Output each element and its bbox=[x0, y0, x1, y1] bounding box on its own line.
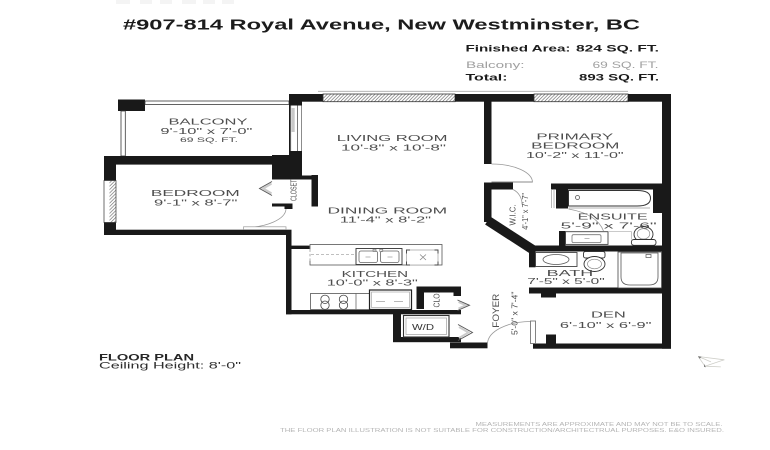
svg-text:Balcony:: Balcony: bbox=[466, 60, 525, 70]
svg-text:69 SQ. FT.: 69 SQ. FT. bbox=[180, 137, 238, 144]
svg-text:824 SQ. FT.: 824 SQ. FT. bbox=[576, 44, 659, 54]
svg-text:BALCONY: BALCONY bbox=[169, 116, 249, 126]
svg-text:Finished Area:: Finished Area: bbox=[466, 44, 571, 54]
svg-text:10'-0" x 8'-3": 10'-0" x 8'-3" bbox=[327, 278, 418, 288]
svg-text:W.I.C.: W.I.C. bbox=[507, 205, 517, 226]
svg-text:LIVING ROOM: LIVING ROOM bbox=[337, 133, 448, 143]
svg-text:69 SQ. FT.: 69 SQ. FT. bbox=[593, 60, 659, 70]
svg-text:9'-1" x 8'-7": 9'-1" x 8'-7" bbox=[154, 198, 237, 208]
svg-text:9'-10" x 7'-0": 9'-10" x 7'-0" bbox=[160, 126, 252, 136]
svg-text:Total:: Total: bbox=[466, 72, 508, 82]
svg-text:#907-814 Royal Avenue, New Wes: #907-814 Royal Avenue, New Westminster, … bbox=[123, 18, 641, 34]
svg-text:10'-2" x 11'-0": 10'-2" x 11'-0" bbox=[526, 150, 624, 160]
svg-text:11'-4" x 8'-2": 11'-4" x 8'-2" bbox=[340, 215, 431, 225]
svg-text:CLO.: CLO. bbox=[432, 292, 441, 308]
svg-text:10'-8" x 10'-8": 10'-8" x 10'-8" bbox=[341, 143, 446, 153]
svg-text:5'-0" x 7'-4": 5'-0" x 7'-4" bbox=[510, 292, 520, 335]
svg-text:CLOSET: CLOSET bbox=[289, 179, 298, 201]
svg-text:7'-5" x 5'-0": 7'-5" x 5'-0" bbox=[527, 276, 604, 286]
svg-text:4'-1" x 7'-7": 4'-1" x 7'-7" bbox=[520, 193, 530, 230]
svg-text:DEN: DEN bbox=[591, 310, 626, 320]
svg-text:5'-9" x 7'-6": 5'-9" x 7'-6" bbox=[561, 221, 657, 231]
svg-text:FOYER: FOYER bbox=[491, 294, 502, 328]
svg-text:6'-10" x 6'-9": 6'-10" x 6'-9" bbox=[560, 320, 652, 330]
svg-text:W/D: W/D bbox=[412, 323, 434, 332]
svg-text:Ceiling Height: 8'-0": Ceiling Height: 8'-0" bbox=[99, 360, 241, 370]
svg-text:893 SQ. FT.: 893 SQ. FT. bbox=[579, 72, 659, 82]
svg-text:THE FLOOR PLAN ILLUSTRATION IS: THE FLOOR PLAN ILLUSTRATION IS NOT SUITA… bbox=[280, 428, 724, 434]
